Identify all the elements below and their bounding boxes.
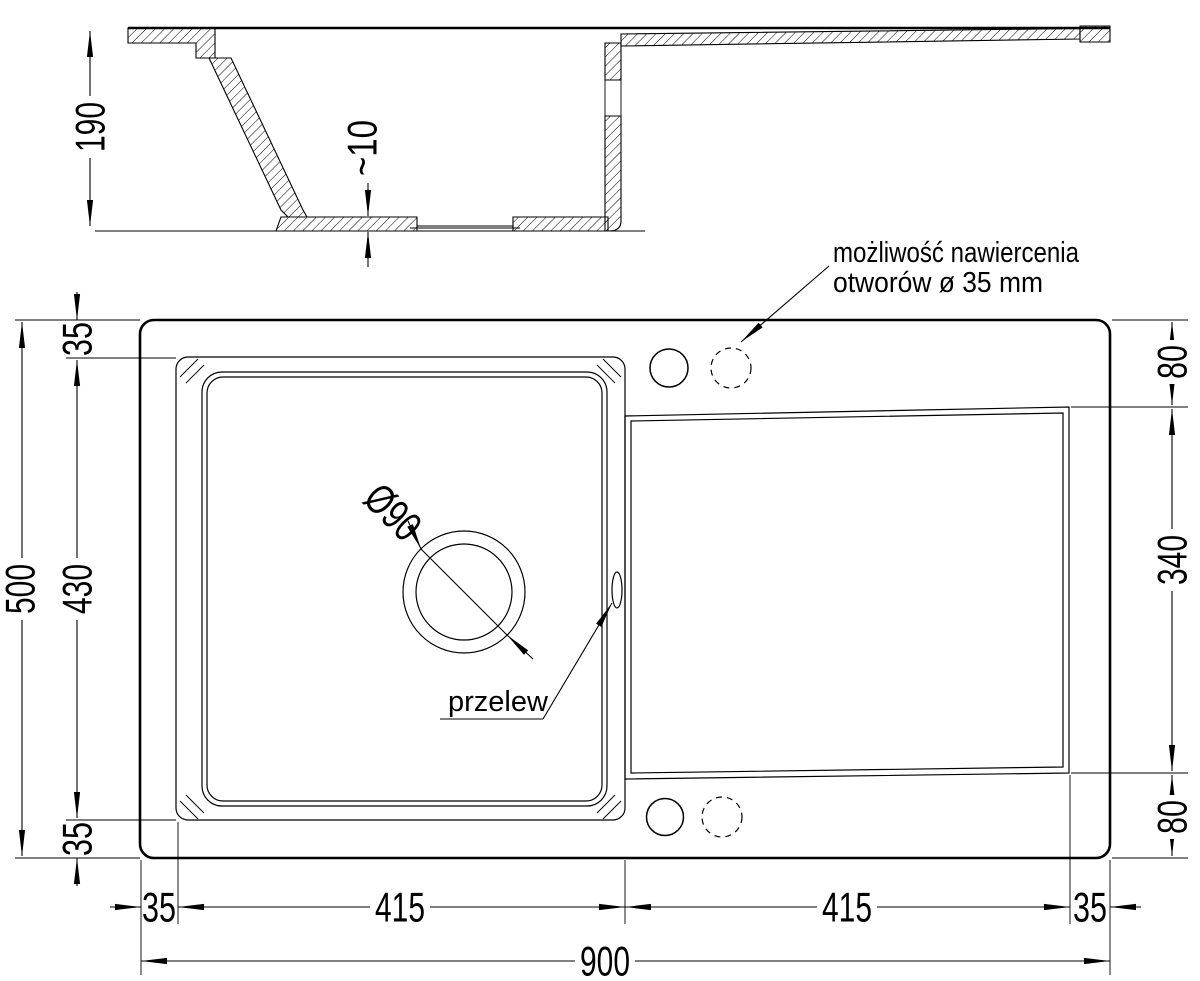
dim-left-margin-top: 35 xyxy=(54,292,101,356)
drainer-recess-outer xyxy=(625,407,1069,779)
sink-technical-drawing: 190 ~10 xyxy=(0,0,1200,981)
section-right-wall-upper xyxy=(605,43,621,80)
overflow-label: przelew xyxy=(448,686,549,718)
dim-bowl-height: 430 xyxy=(54,360,101,818)
section-overflow-gap xyxy=(605,80,621,116)
dim-bowl-width: 415 xyxy=(178,884,625,931)
dim-bottom-thickness: ~10 xyxy=(339,120,386,267)
dim-total-height: 500 xyxy=(0,322,44,856)
depth-value: 190 xyxy=(67,102,114,152)
section-right-wall-lower xyxy=(605,116,621,231)
dimensions: 500 430 35 35 80 340 xyxy=(0,292,1196,981)
bottom-thickness-value: ~10 xyxy=(339,120,386,176)
bowl-corner-chamfers xyxy=(180,359,621,819)
drill-note-line1: możliwość nawiercenia xyxy=(833,237,1080,269)
drill-note-line2: otworów ø 35 mm xyxy=(833,267,1043,299)
drainer-width-value: 415 xyxy=(822,884,872,931)
dim-drainer-width: 415 xyxy=(625,884,1070,931)
right-margin-bottom-value: 80 xyxy=(1149,800,1196,834)
dim-right-margin-bottom: 80 xyxy=(1149,775,1196,856)
overflow: przelew xyxy=(440,572,622,719)
bowl-rim-outer xyxy=(176,357,625,820)
drainer-height-value: 340 xyxy=(1149,535,1196,585)
section-left-wall xyxy=(209,58,307,217)
dim-bottom-margin-left: 35 xyxy=(110,884,176,931)
overflow-slot xyxy=(612,572,622,608)
plan-view: Ø90 przelew możliwość nawiercenia otworó… xyxy=(140,237,1110,858)
dim-depth-190: 190 xyxy=(67,31,114,226)
total-width-value: 900 xyxy=(580,938,630,981)
section-view: 190 ~10 xyxy=(67,26,1111,267)
optional-hole-bottom xyxy=(702,797,742,837)
drill-note: możliwość nawiercenia otworów ø 35 mm xyxy=(741,237,1080,342)
bowl-opening-inner xyxy=(207,377,602,801)
drawing-canvas: 190 ~10 xyxy=(0,0,1200,981)
bowl-opening-outer xyxy=(202,372,607,806)
dim-right-margin-top: 80 xyxy=(1149,322,1196,405)
right-margin-top-value: 80 xyxy=(1149,345,1196,379)
dim-drainer-height: 340 xyxy=(1149,409,1196,771)
bowl-width-value: 415 xyxy=(375,884,425,931)
section-floor-right xyxy=(513,217,608,231)
left-margin-top-value: 35 xyxy=(54,322,101,356)
dim-bottom-margin-right: 35 xyxy=(1073,884,1141,931)
section-drainer-strip xyxy=(621,29,1080,47)
dim-total-width: 900 xyxy=(141,938,1110,981)
drain: Ø90 xyxy=(355,474,533,659)
section-drainer-end xyxy=(1080,26,1110,42)
optional-hole-top xyxy=(711,348,751,388)
faucet-hole-top xyxy=(650,349,688,387)
section-left-rim xyxy=(128,28,215,58)
bottom-margin-right-value: 35 xyxy=(1073,884,1107,931)
drainer-recess-inner xyxy=(631,413,1063,773)
dim-left-margin-bottom: 35 xyxy=(54,822,101,886)
bowl-height-value: 430 xyxy=(54,564,101,614)
section-floor-left xyxy=(276,217,417,231)
bottom-margin-left-value: 35 xyxy=(142,884,176,931)
section-drain-recess xyxy=(417,217,513,226)
faucet-hole-bottom xyxy=(647,799,684,836)
left-margin-bottom-value: 35 xyxy=(54,822,101,856)
total-height-value: 500 xyxy=(0,564,44,614)
drain-diameter-label: Ø90 xyxy=(355,474,431,550)
